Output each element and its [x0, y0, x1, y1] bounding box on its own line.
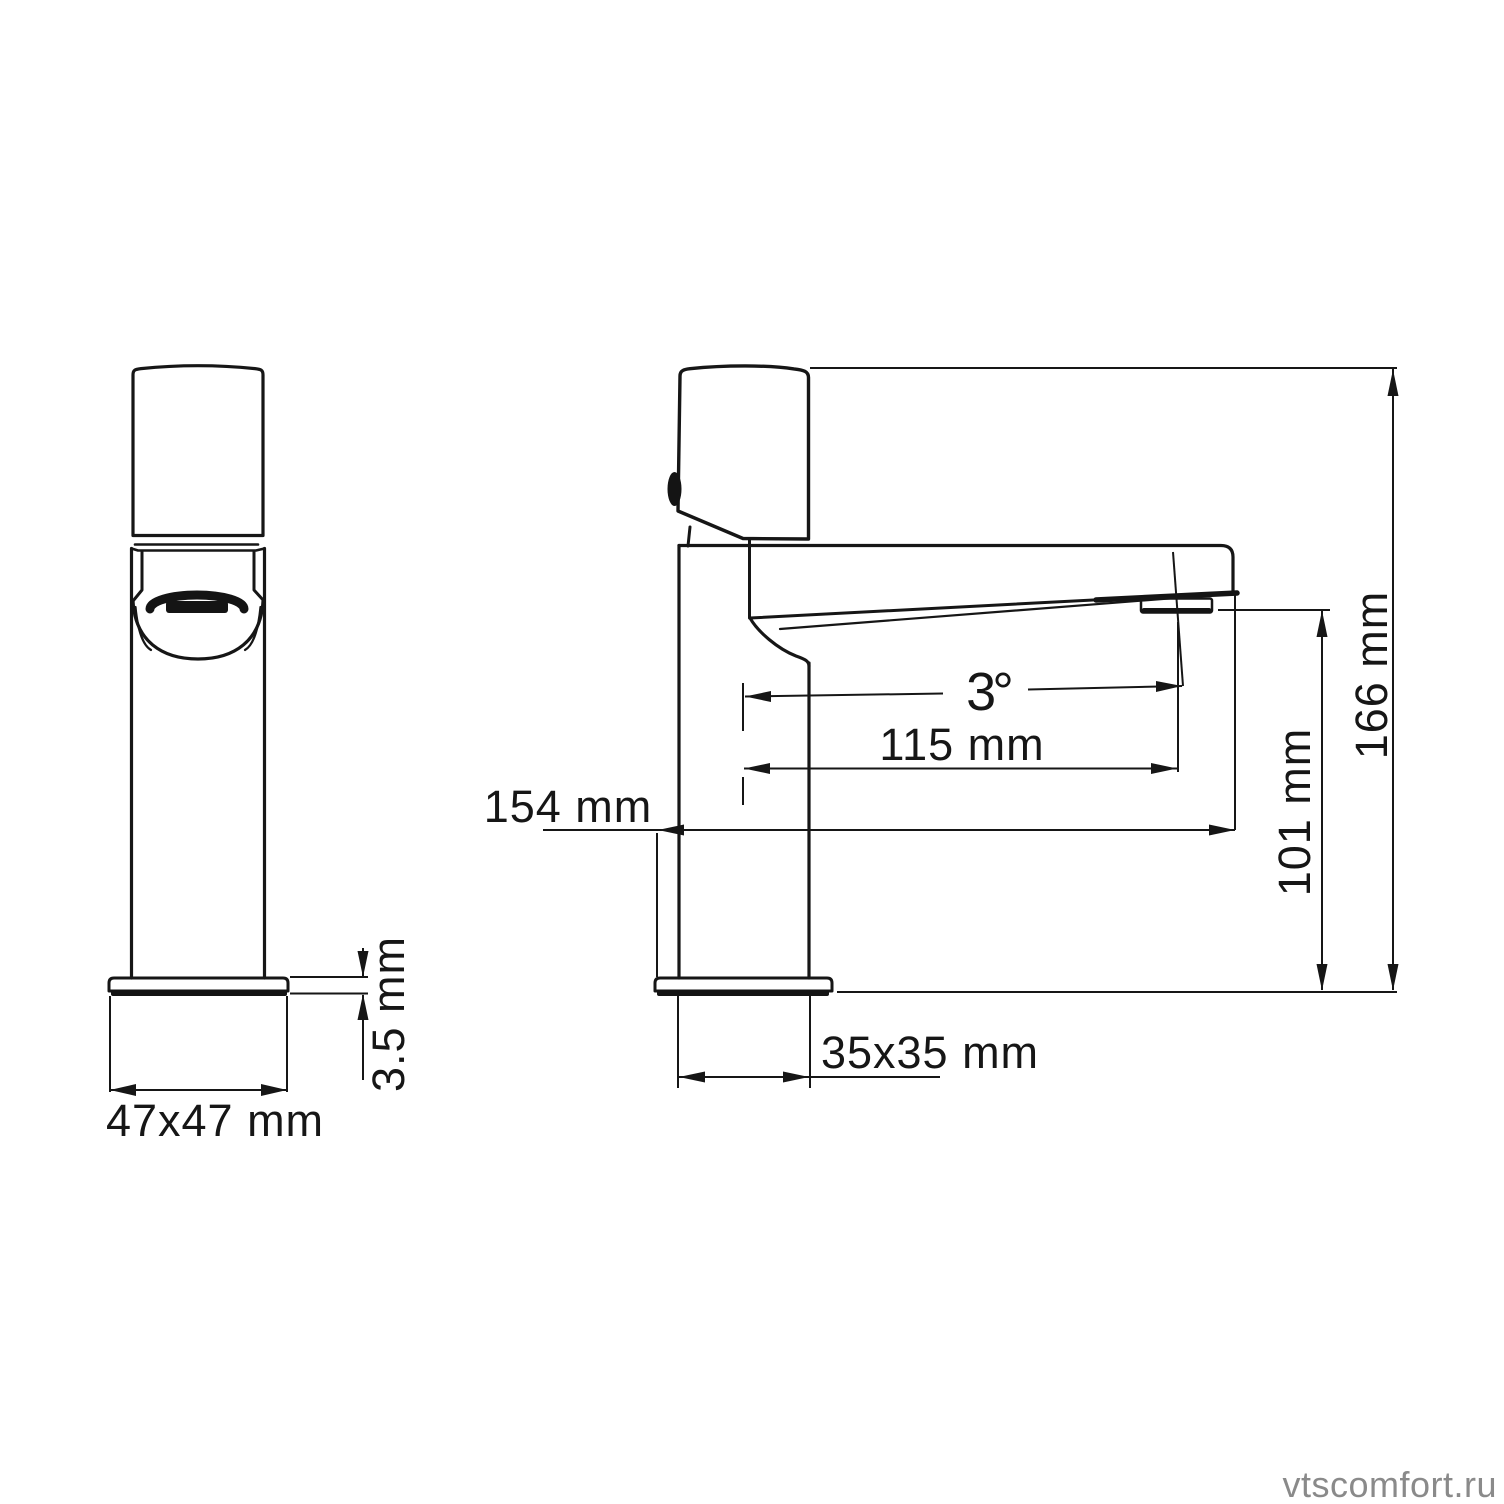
label-plate-thickness: 3.5 mm — [363, 936, 414, 1092]
side-body-top — [679, 546, 1233, 593]
label-reach-total: 154 mm — [484, 781, 653, 832]
side-handle-stem — [688, 527, 690, 546]
label-base-side: 35x35 mm — [821, 1027, 1039, 1078]
front-aerator — [166, 601, 228, 613]
dim-166-arrow-down — [1388, 964, 1399, 991]
dim-166-arrow-up — [1388, 370, 1399, 397]
dim-101-arrow-up — [1317, 611, 1328, 638]
front-base-plate — [109, 978, 288, 991]
dimension-labels: 47x47 mm 3.5 mm 154 mm 115 mm 3° 101 mm … — [106, 591, 1397, 1146]
front-joint-band — [132, 545, 265, 551]
label-total-height: 166 mm — [1346, 591, 1397, 760]
side-handle-knob — [668, 472, 682, 506]
label-outlet-height: 101 mm — [1269, 728, 1320, 897]
label-reach-spout: 115 mm — [879, 719, 1044, 770]
side-handle — [678, 366, 809, 539]
front-view — [109, 366, 288, 996]
label-spout-angle: 3° — [966, 662, 1011, 722]
faucet-dimension-drawing: 47x47 mm 3.5 mm 154 mm 115 mm 3° 101 mm … — [0, 0, 1504, 1504]
dim-154-arrow-right — [1209, 825, 1235, 836]
dim-3535-arrow-left — [679, 1072, 705, 1083]
side-spout-neck-curve — [750, 618, 809, 666]
dim-115-arrow-right — [1151, 763, 1177, 774]
dim-115-arrow-left — [744, 763, 770, 774]
dimension-lines — [110, 368, 1399, 1096]
side-base-plate — [655, 978, 832, 991]
dim-35thk-lines — [290, 948, 368, 1080]
watermark: vtscomfort.ru — [1282, 1464, 1497, 1504]
front-spout-chin-shading — [136, 607, 261, 650]
front-base-plate-shadow — [111, 990, 287, 996]
dim-3535-arrow-right — [783, 1072, 809, 1083]
side-base-plate-shadow — [657, 990, 829, 996]
label-base-front: 47x47 mm — [106, 1095, 324, 1146]
front-handle — [133, 366, 263, 536]
dim-47-ext-lines — [110, 996, 287, 1092]
dim-angle-arrow-left — [745, 691, 771, 702]
drawing-canvas: 47x47 mm 3.5 mm 154 mm 115 mm 3° 101 mm … — [0, 0, 1504, 1504]
side-view — [655, 366, 1237, 996]
dim-101-arrow-down — [1317, 964, 1328, 991]
dim-154-arrow-left — [658, 825, 684, 836]
